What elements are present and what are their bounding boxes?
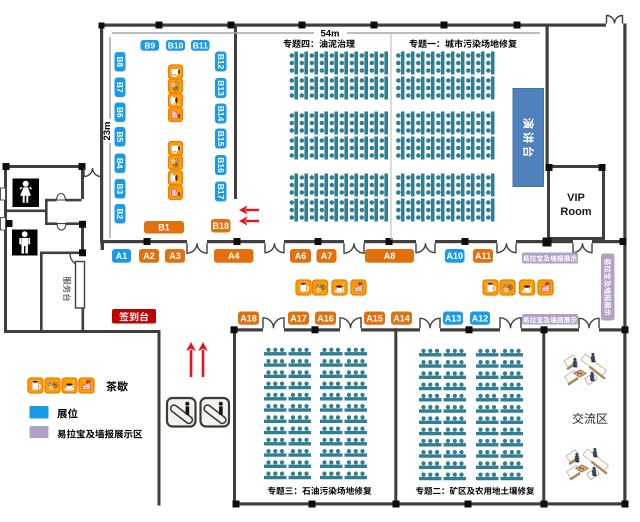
svg-text:A4: A4 [228,251,240,261]
svg-text:A8: A8 [384,251,396,261]
svg-text:VIP: VIP [567,192,585,204]
svg-text:A1: A1 [116,251,128,261]
svg-text:B4: B4 [115,158,125,169]
svg-text:B8: B8 [115,56,125,67]
svg-text:B12: B12 [216,54,226,70]
svg-text:A6: A6 [295,251,307,261]
svg-text:A11: A11 [475,251,491,261]
svg-text:B5: B5 [115,131,125,142]
svg-text:54m: 54m [320,29,339,40]
svg-text:A17: A17 [290,313,307,323]
svg-text:B18: B18 [212,221,229,231]
svg-text:B7: B7 [115,82,125,93]
svg-text:A3: A3 [169,251,181,261]
svg-text:Room: Room [560,206,591,218]
svg-text:B14: B14 [216,106,226,122]
svg-text:A2: A2 [143,251,155,261]
svg-text:A18: A18 [240,313,257,323]
svg-text:A15: A15 [366,313,383,323]
svg-text:A14: A14 [393,313,410,323]
svg-text:B16: B16 [216,157,226,173]
svg-text:B15: B15 [216,131,226,147]
svg-text:A13: A13 [445,313,462,323]
svg-text:B10: B10 [168,41,184,51]
svg-text:B11: B11 [193,41,208,51]
svg-text:B3: B3 [115,183,125,194]
svg-text:A16: A16 [317,313,334,323]
svg-text:B2: B2 [115,208,125,219]
svg-text:A12: A12 [472,313,489,323]
svg-text:B13: B13 [216,80,226,96]
svg-text:A7: A7 [321,251,333,261]
svg-text:A10: A10 [446,251,463,261]
svg-text:B1: B1 [158,222,170,232]
svg-text:B17: B17 [216,184,226,200]
svg-text:B9: B9 [144,41,155,51]
svg-text:B6: B6 [115,107,125,118]
svg-text:23m: 23m [102,121,113,140]
